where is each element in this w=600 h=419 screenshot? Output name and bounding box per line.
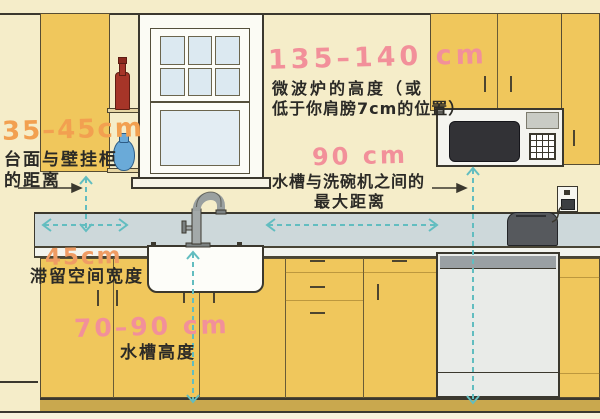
dim-value-sink-height: 70–90 cm <box>74 312 230 341</box>
dim-label-microwave-2: 低于你肩膀7cm的位置） <box>272 99 465 119</box>
kitchen-dimensions-illustration: 35–45cm 台面与壁挂柜 的距离 135–140 cm 微波炉的高度（或 低… <box>0 0 600 419</box>
dim-value-counter-cabinet: 35–45cm <box>2 115 145 145</box>
dim-label-sink-dishwasher-2: 最大距离 <box>314 192 386 212</box>
toaster-cord <box>552 206 563 222</box>
dim-label-sink-dishwasher-1: 水槽与洗碗机之间的 <box>272 172 425 192</box>
dim-label-microwave-1: 微波炉的高度（或 <box>272 79 424 99</box>
faucet <box>182 192 226 247</box>
dim-value-sink-dishwasher: 90 cm <box>312 143 409 170</box>
dim-label-counter-cabinet-2: 的距离 <box>4 171 61 192</box>
dim-label-sink-height: 水槽高度 <box>120 343 196 364</box>
dim-label-counter-cabinet-1: 台面与壁挂柜 <box>4 150 118 171</box>
dim-value-microwave: 135–140 cm <box>268 41 488 74</box>
dim-label-landing: 滞留空间宽度 <box>30 267 144 288</box>
